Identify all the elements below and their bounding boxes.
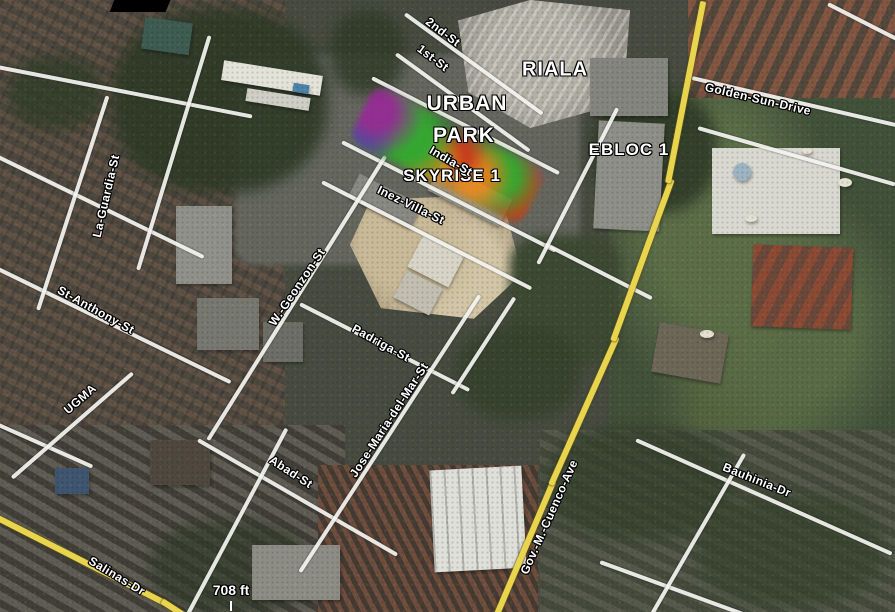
poi-label-urban-park-line1: URBAN: [427, 92, 508, 116]
poi-label-urban-park-line2: PARK: [433, 124, 495, 148]
scale-bar-label: 708 ft: [213, 582, 250, 598]
poi-label-riala: RIALA: [522, 59, 588, 82]
scale-bar-tick: [230, 601, 232, 611]
missing-imagery-patch: [110, 0, 171, 12]
satellite-map[interactable]: RIALA URBAN PARK EBLOC 1 SKYRISE 1 2nd-S…: [0, 0, 895, 612]
poi-label-ebloc1: EBLOC 1: [589, 140, 670, 160]
